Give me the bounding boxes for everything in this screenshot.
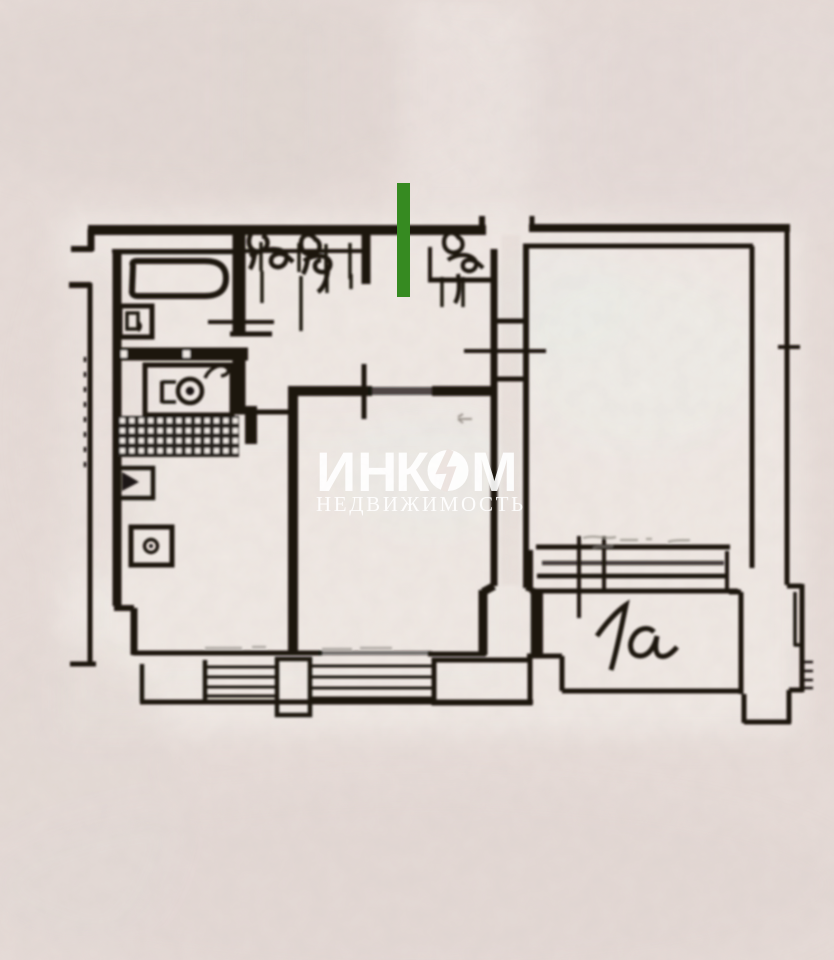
svg-text:НЕДВИЖИМОСТЬ: НЕДВИЖИМОСТЬ: [316, 492, 526, 516]
